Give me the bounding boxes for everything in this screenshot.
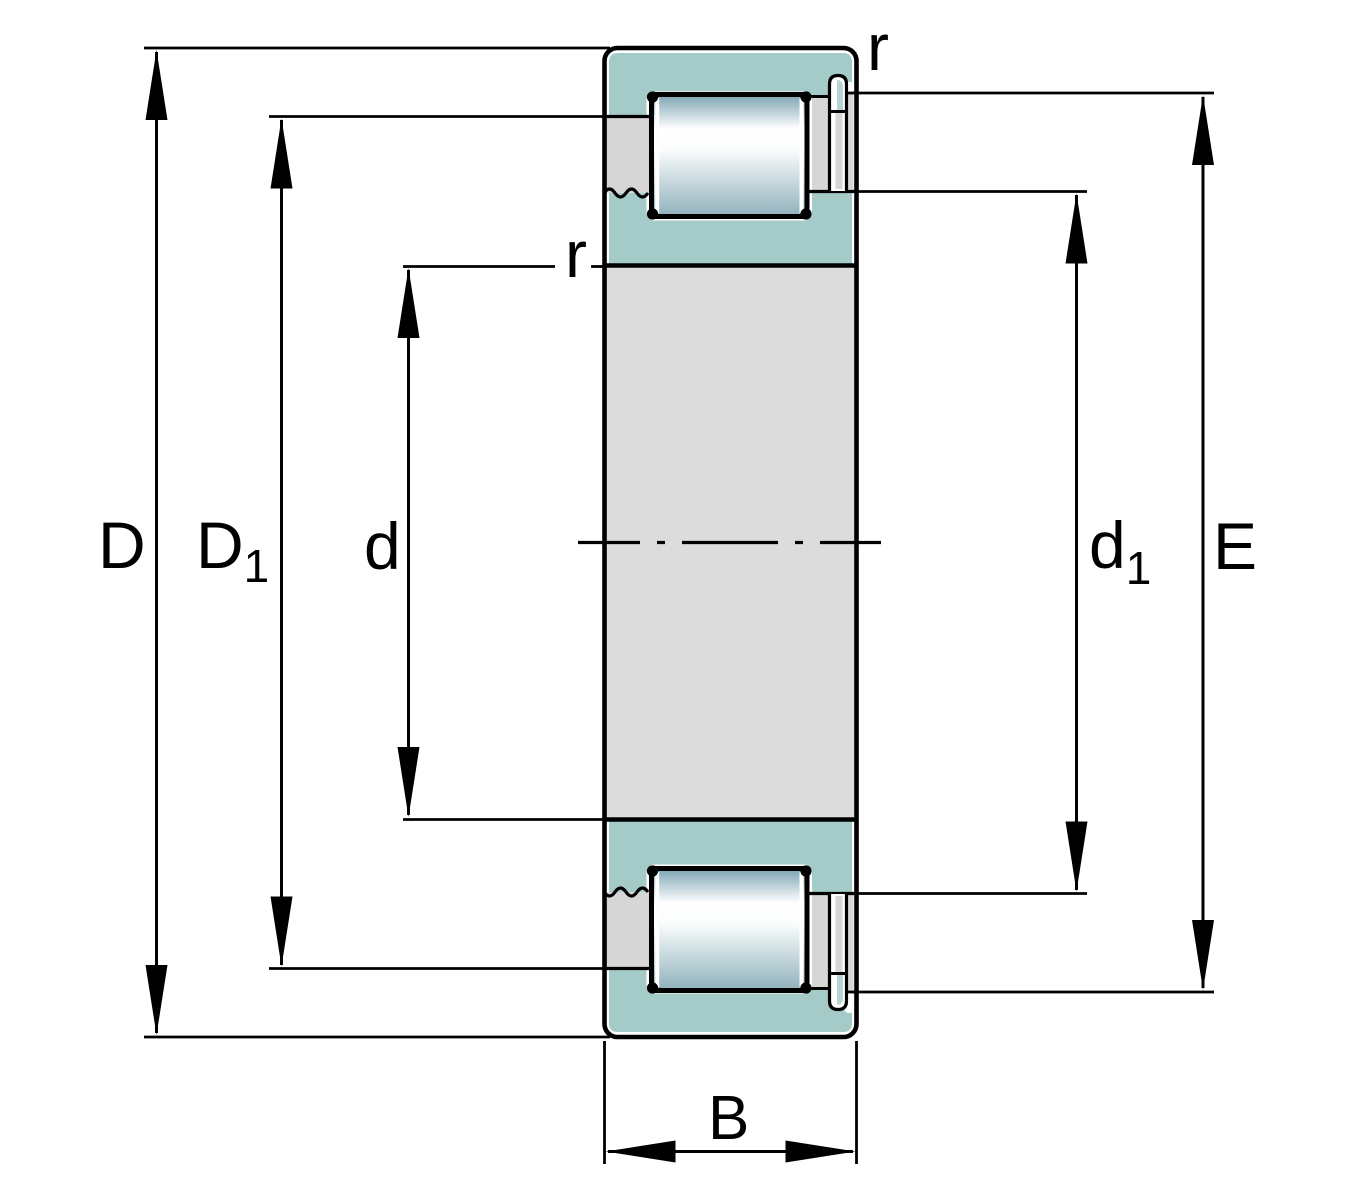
svg-text:E: E [1213,509,1257,583]
svg-text:D: D [98,508,146,582]
svg-text:r: r [867,10,889,84]
svg-text:B: B [708,1084,749,1153]
svg-text:d: d [364,509,401,583]
svg-text:r: r [565,217,587,291]
